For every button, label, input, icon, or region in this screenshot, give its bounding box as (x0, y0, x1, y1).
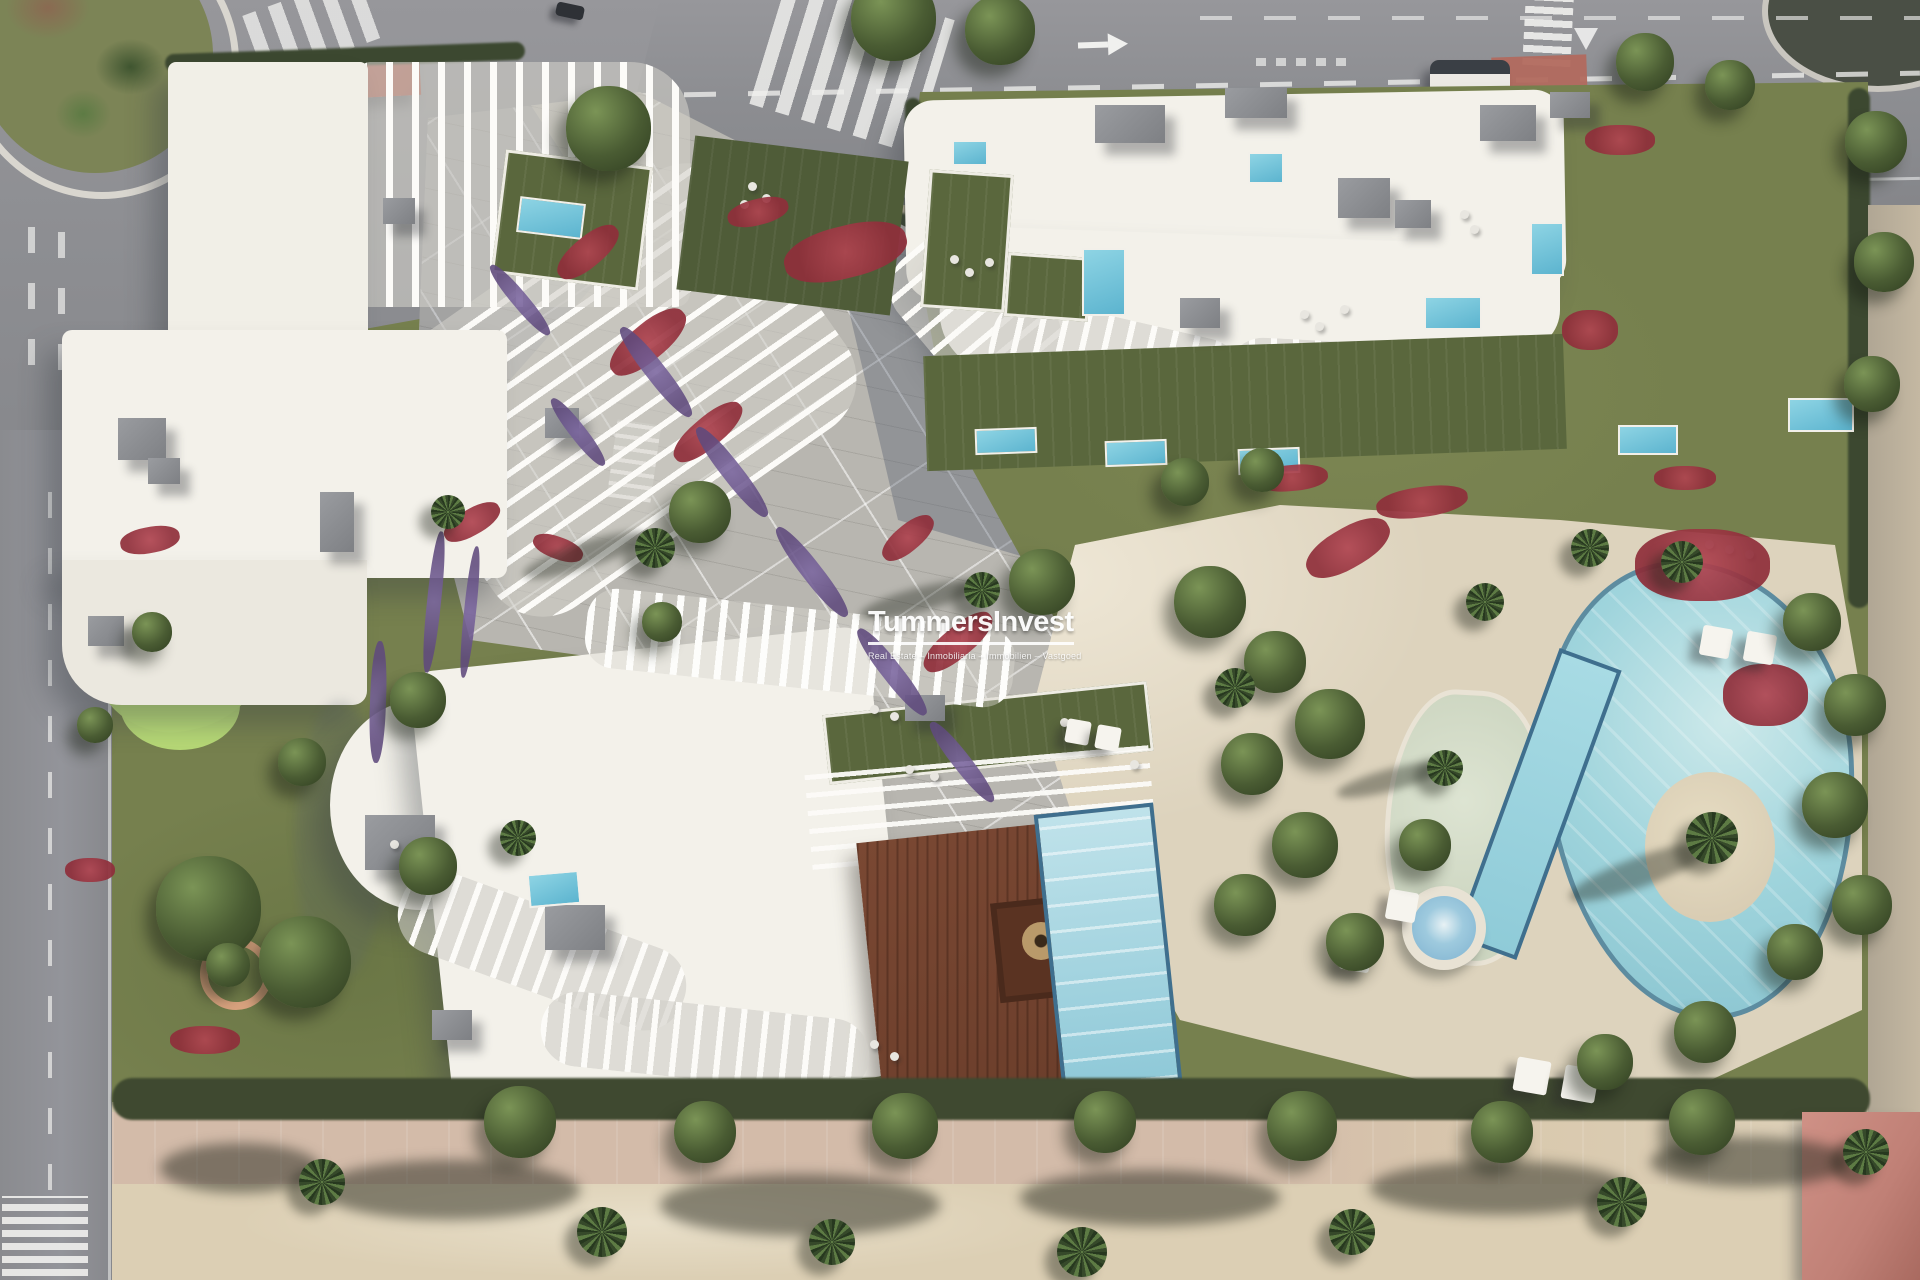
tree (1399, 819, 1451, 871)
palm-tree (1427, 750, 1463, 786)
rooftop-pool (1788, 398, 1854, 432)
beach-shadow (160, 1143, 320, 1193)
flower-bed (876, 508, 940, 568)
flower-bed (1374, 481, 1469, 524)
flower-bed (368, 641, 388, 763)
rooftop-unit (148, 458, 180, 484)
furniture (1130, 760, 1139, 769)
umbrella (1094, 724, 1122, 752)
rooftop-unit (383, 198, 415, 224)
rooftop-unit (88, 616, 124, 646)
tree (1802, 772, 1868, 838)
furniture (748, 182, 757, 191)
umbrella (1064, 718, 1092, 746)
rooftop-pool (1082, 248, 1126, 316)
furniture (870, 705, 879, 714)
rooftop-unit (1550, 92, 1590, 118)
flower-bed (770, 522, 855, 623)
palm-tree (1466, 583, 1504, 621)
beach-shadow (1370, 1161, 1630, 1215)
furniture (1340, 305, 1349, 314)
flower-bed (65, 858, 115, 882)
tree (390, 672, 446, 728)
tree (1174, 566, 1246, 638)
beach-shadow (320, 1160, 580, 1220)
tree (1767, 924, 1823, 980)
tree (1577, 1034, 1633, 1090)
tree (484, 1086, 556, 1158)
tree (156, 856, 261, 961)
palm-tree (1686, 812, 1738, 864)
palm-tree (964, 572, 1000, 608)
palm-tree (1215, 668, 1255, 708)
furniture (1470, 225, 1479, 234)
umbrella (1385, 889, 1420, 924)
tree (132, 612, 172, 652)
rooftop-unit (1338, 178, 1390, 218)
rooftop-unit (1480, 105, 1536, 141)
umbrella (1699, 625, 1734, 660)
flower-bed (778, 212, 912, 293)
furniture (905, 765, 914, 774)
tree (1824, 674, 1886, 736)
rooftop-pool (1530, 222, 1564, 276)
tree (1705, 60, 1755, 110)
tree (1221, 733, 1283, 795)
palm-tree (500, 820, 536, 856)
furniture (1315, 322, 1324, 331)
rooftop-unit (1180, 298, 1220, 328)
palm-tree (1057, 1227, 1107, 1277)
rooftop-pool (952, 140, 988, 166)
umbrella (1743, 631, 1778, 666)
palm-tree (1329, 1209, 1375, 1255)
flower-bed (457, 546, 483, 679)
tree (278, 738, 326, 786)
flower-bed (1585, 125, 1655, 155)
tree (1295, 689, 1365, 759)
rooftop-pool (527, 870, 582, 908)
tree (1783, 593, 1841, 651)
palm-tree (577, 1207, 627, 1257)
rooftop-pool (1248, 152, 1284, 184)
flower-bed (485, 260, 555, 339)
furniture (965, 268, 974, 277)
flower-bed (1562, 310, 1618, 350)
furniture (1460, 210, 1469, 219)
rooftop-pool (1105, 439, 1168, 467)
palm-tree (1661, 541, 1703, 583)
furniture (1300, 310, 1309, 319)
flower-bed (725, 192, 791, 232)
palm-tree (1571, 529, 1609, 567)
tree (206, 943, 250, 987)
tree (566, 86, 651, 171)
watermark: TummersInvest Real Estate – Inmobiliaria… (868, 606, 1081, 661)
rooftop-unit (320, 492, 354, 552)
tree (851, 0, 936, 61)
tree (642, 602, 682, 642)
tree (1161, 458, 1209, 506)
tree (674, 1101, 736, 1163)
tree (1272, 812, 1338, 878)
tree (1326, 913, 1384, 971)
furniture (985, 258, 994, 267)
tree (1267, 1091, 1337, 1161)
palm-shadow (519, 523, 651, 588)
rooftop-unit (545, 905, 605, 950)
tree (1240, 448, 1284, 492)
tree (1854, 232, 1914, 292)
flower-bed (118, 522, 182, 558)
tree (1074, 1091, 1136, 1153)
tree (399, 837, 457, 895)
tree (669, 481, 731, 543)
tree (1616, 33, 1674, 91)
tree (1844, 356, 1900, 412)
tree (1674, 1001, 1736, 1063)
tree (259, 916, 351, 1008)
palm-tree (1597, 1177, 1647, 1227)
rooftop-pool (516, 196, 586, 240)
tree (1832, 875, 1892, 935)
furniture (870, 1040, 879, 1049)
flower-bed (420, 531, 449, 674)
umbrella (1512, 1056, 1551, 1095)
palm-tree (299, 1159, 345, 1205)
palm-tree (1843, 1129, 1889, 1175)
aerial-render: TummersInvest Real Estate – Inmobiliaria… (0, 0, 1920, 1280)
beach-shadow (660, 1174, 940, 1236)
palm-tree (635, 528, 675, 568)
furniture (890, 1052, 899, 1061)
furniture (950, 255, 959, 264)
watermark-title: TummersInvest (868, 606, 1074, 645)
tree (872, 1093, 938, 1159)
rooftop-unit (118, 418, 166, 460)
flower-bed (170, 1026, 240, 1054)
tree (1669, 1089, 1735, 1155)
furniture (930, 772, 939, 781)
tree (77, 707, 113, 743)
watermark-subtitle: Real Estate – Inmobiliaria – Immobilien … (868, 651, 1081, 661)
tree (1471, 1101, 1533, 1163)
tree (965, 0, 1035, 65)
flower-bed (1298, 508, 1398, 589)
rooftop-unit (1095, 105, 1165, 143)
rooftop-pool (1618, 425, 1678, 455)
flower-bed (924, 717, 1000, 807)
rooftop-pool (1424, 296, 1482, 330)
rooftop-unit (1225, 88, 1287, 118)
flower-bed (1723, 664, 1808, 726)
rooftop-pool (975, 427, 1038, 455)
flower-bed (1654, 466, 1716, 490)
tree (1214, 874, 1276, 936)
rooftop-unit (1395, 200, 1431, 228)
palm-tree (809, 1219, 855, 1265)
tree (1845, 111, 1907, 173)
furniture (390, 840, 399, 849)
palm-tree (431, 495, 465, 529)
furniture (890, 712, 899, 721)
rooftop-unit (432, 1010, 472, 1040)
beach-shadow (1020, 1170, 1280, 1226)
